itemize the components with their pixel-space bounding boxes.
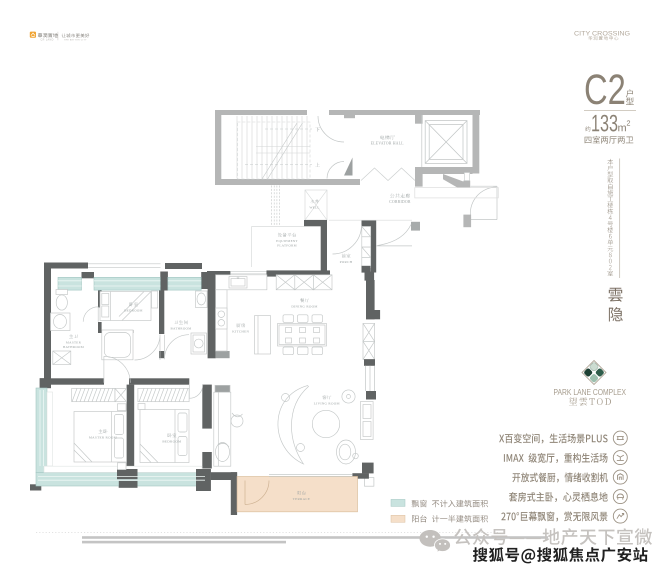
svg-text:BEDROOM: BEDROOM: [162, 439, 181, 443]
svg-text:CR LAND: CR LAND: [41, 38, 54, 41]
svg-text:CORRIDOR: CORRIDOR: [389, 200, 411, 204]
svg-text:BEDROOM: BEDROOM: [124, 308, 143, 312]
svg-text:ELEVATOR HALL: ELEVATOR HALL: [371, 142, 405, 146]
svg-text:LIVING ROOM: LIVING ROOM: [314, 401, 340, 405]
svg-text:MASTER: MASTER: [66, 340, 82, 344]
svg-text:THE BETTER CITY: THE BETTER CITY: [64, 39, 87, 41]
svg-text:DINING ROOM: DINING ROOM: [291, 304, 317, 308]
svg-text:WELL: WELL: [309, 205, 319, 209]
svg-text:PARK LANE COMPLEX: PARK LANE COMPLEX: [554, 388, 627, 397]
svg-text:TERRACE: TERRACE: [293, 497, 311, 501]
svg-text:BATHROOM: BATHROOM: [171, 326, 192, 330]
svg-text:EQUIPMENT: EQUIPMENT: [276, 239, 298, 243]
svg-text:BATHROOM: BATHROOM: [63, 345, 84, 349]
svg-text:KITCHEN: KITCHEN: [232, 329, 249, 333]
svg-text:MASTER ROOM: MASTER ROOM: [89, 435, 117, 439]
svg-text:PORCH: PORCH: [340, 260, 353, 264]
svg-text:PLATFORM: PLATFORM: [277, 243, 297, 247]
